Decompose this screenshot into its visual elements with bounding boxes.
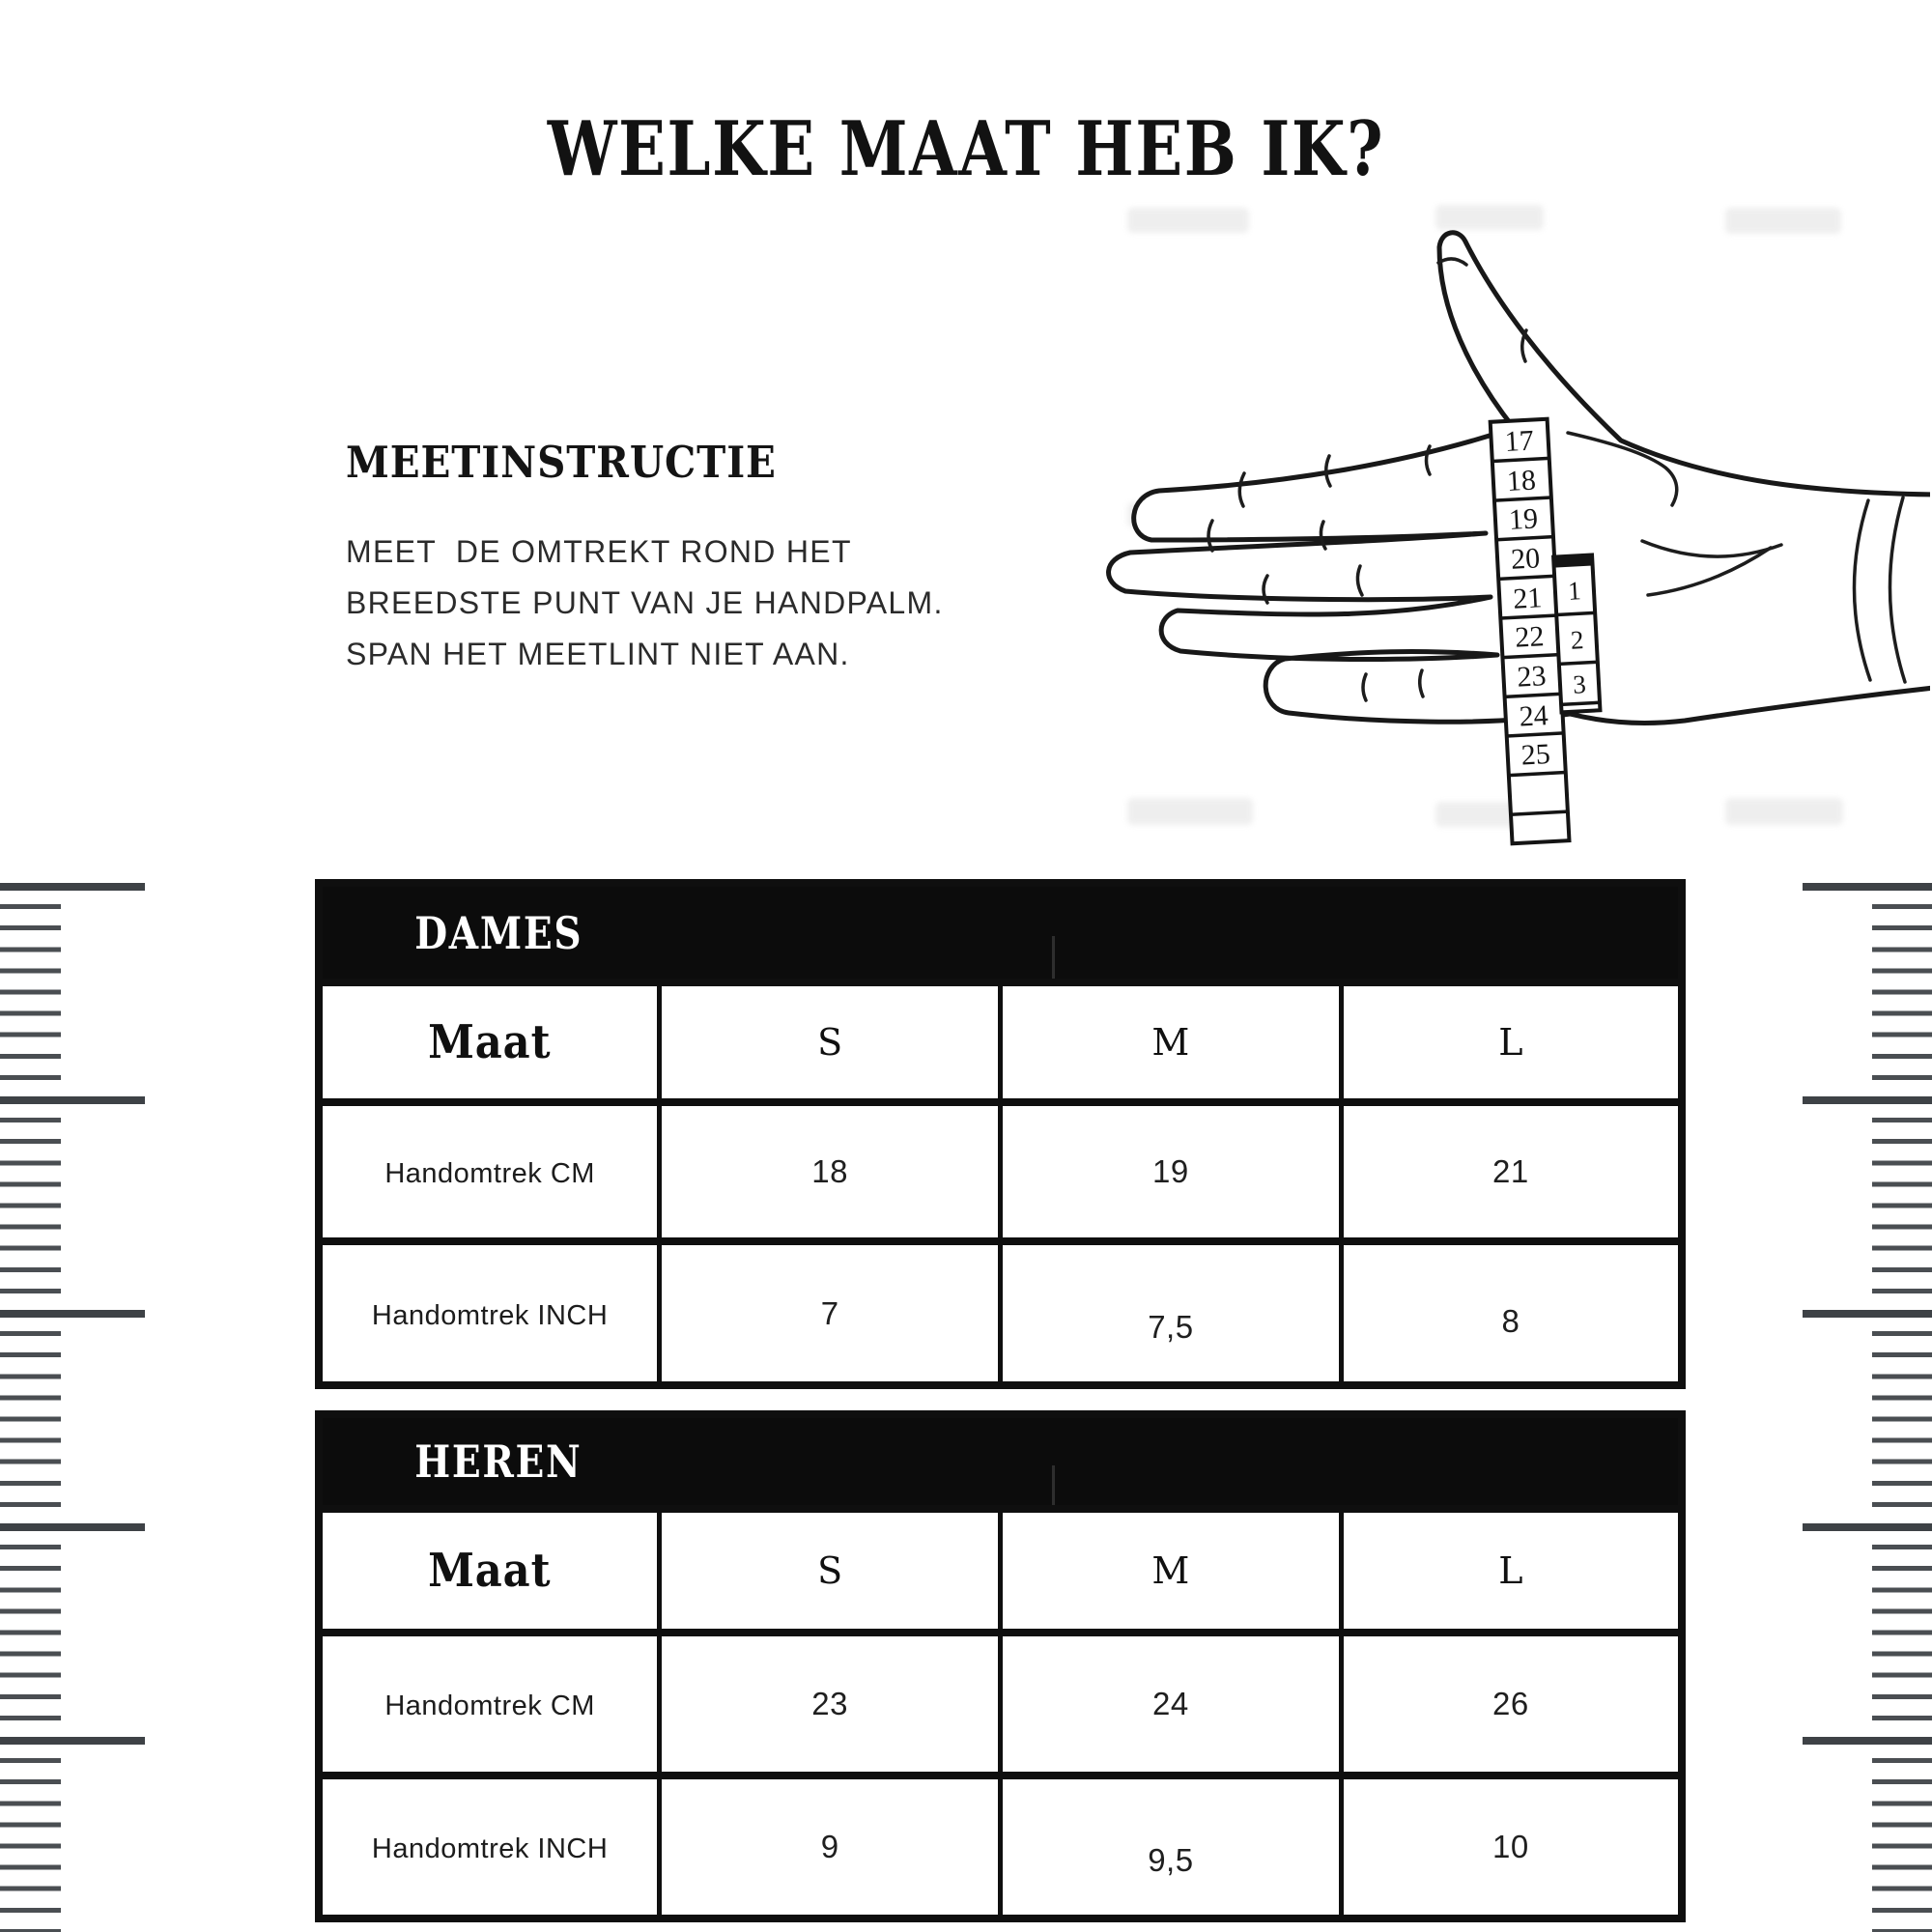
- table-cell: 9: [660, 1776, 1001, 1918]
- band-artifact-line: [1052, 1465, 1055, 1505]
- table-cell: 9,5: [1148, 1842, 1193, 1879]
- table-row: Handomtrek CM 18 19 21: [319, 1102, 1682, 1241]
- page-title: WELKE MAAT HEB IK?: [174, 108, 1758, 191]
- ruler-decoration-right: [1803, 883, 1932, 1932]
- table-row: Handomtrek INCH 7 7,5 8: [319, 1241, 1682, 1385]
- dames-size-table: DAMES Maat S M L Handomtrek CM 18 19 21: [315, 879, 1686, 1389]
- table-cell: 26: [1341, 1633, 1682, 1776]
- row-label: Handomtrek INCH: [372, 1300, 608, 1331]
- tape-number: 23: [1517, 660, 1548, 694]
- tape-number: 24: [1519, 699, 1549, 733]
- hand-measure-illustration: 17 18 19 20 21 22 23 24 25: [1080, 185, 1930, 862]
- table-cell: 18: [660, 1102, 1001, 1241]
- table-cell: 23: [660, 1633, 1001, 1776]
- hand-with-tape-drawing: 17 18 19 20 21 22 23 24 25: [1080, 185, 1930, 862]
- instruction-line: BREEDSTE PUNT VAN JE HANDPALM.: [346, 578, 1022, 629]
- heren-header-row: Maat S M L: [319, 1509, 1682, 1633]
- column-header-l: L: [1498, 1549, 1522, 1592]
- instruction-heading: MEETINSTRUCTIE: [346, 437, 954, 488]
- table-row: Handomtrek CM 23 24 26: [319, 1633, 1682, 1776]
- column-header-maat: Maat: [428, 1015, 551, 1069]
- tape-end-strip: 1 2 3: [1553, 554, 1600, 712]
- column-header-m: M: [1151, 1021, 1189, 1064]
- dames-table-band: DAMES: [319, 883, 1682, 982]
- instruction-line: MEET DE OMTREKT ROND HET: [346, 526, 1022, 578]
- tape-number: 17: [1504, 425, 1535, 459]
- instruction-line: SPAN HET MEETLINT NIET AAN.: [346, 629, 1022, 680]
- tape-number: 3: [1572, 669, 1586, 699]
- column-header-s: S: [817, 1021, 842, 1064]
- table-cell: 8: [1501, 1303, 1520, 1340]
- dames-header-row: Maat S M L: [319, 982, 1682, 1102]
- tape-number: 2: [1570, 625, 1584, 655]
- column-header-m: M: [1151, 1549, 1189, 1592]
- table-cell: 24: [1001, 1633, 1342, 1776]
- band-artifact-line: [1052, 936, 1055, 979]
- heren-table-title: HEREN: [323, 1435, 582, 1488]
- tape-number: 1: [1567, 576, 1581, 606]
- size-guide-page: WELKE MAAT HEB IK? MEETINSTRUCTIE MEET D…: [0, 0, 1932, 1932]
- table-row: Handomtrek INCH 9 9,5 10: [319, 1776, 1682, 1918]
- tape-number: 18: [1506, 464, 1537, 497]
- row-label: Handomtrek INCH: [372, 1833, 608, 1864]
- row-label: Handomtrek CM: [384, 1690, 595, 1721]
- ruler-decoration-left: [0, 883, 145, 1932]
- heren-size-table: HEREN Maat S M L Handomtrek CM 23 24 26: [315, 1410, 1686, 1922]
- table-cell: 19: [1001, 1102, 1342, 1241]
- table-cell: 10: [1341, 1776, 1682, 1918]
- tape-number: 20: [1510, 542, 1541, 576]
- heren-table-band: HEREN: [319, 1414, 1682, 1509]
- column-header-maat: Maat: [428, 1544, 551, 1598]
- row-label: Handomtrek CM: [384, 1158, 595, 1189]
- column-header-l: L: [1498, 1021, 1522, 1064]
- tape-number: 21: [1512, 582, 1543, 615]
- tape-number: 19: [1508, 502, 1539, 536]
- tape-number: 22: [1515, 620, 1546, 654]
- measuring-instruction: MEETINSTRUCTIE MEET DE OMTREKT ROND HET …: [346, 437, 1022, 680]
- table-cell: 7: [660, 1241, 1001, 1385]
- tape-number: 25: [1520, 738, 1551, 772]
- table-cell: 7,5: [1148, 1309, 1193, 1346]
- dames-table-title: DAMES: [323, 907, 582, 959]
- table-cell: 21: [1341, 1102, 1682, 1241]
- column-header-s: S: [817, 1549, 842, 1592]
